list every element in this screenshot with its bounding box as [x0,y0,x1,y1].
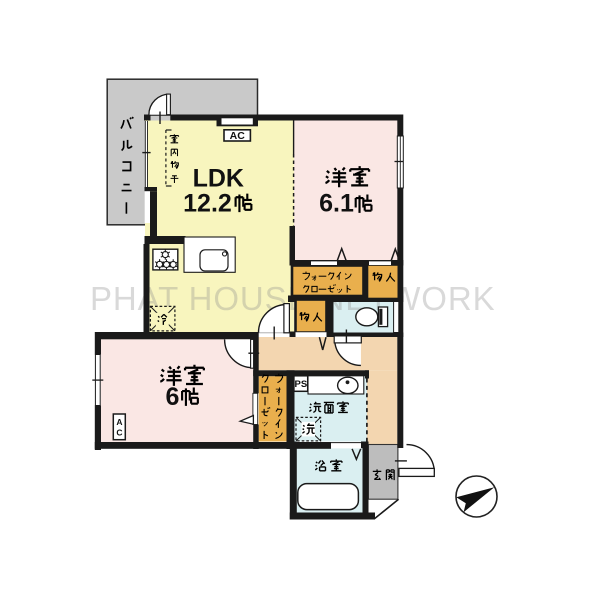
svg-text:AC: AC [230,130,246,142]
svg-text:12.2: 12.2 [183,189,232,217]
svg-text:LDK: LDK [193,164,244,192]
svg-text:6: 6 [166,383,180,411]
svg-text:A: A [116,417,122,427]
svg-text:6.1: 6.1 [319,190,354,218]
svg-text:C: C [116,428,122,438]
svg-text:PS: PS [295,379,308,390]
